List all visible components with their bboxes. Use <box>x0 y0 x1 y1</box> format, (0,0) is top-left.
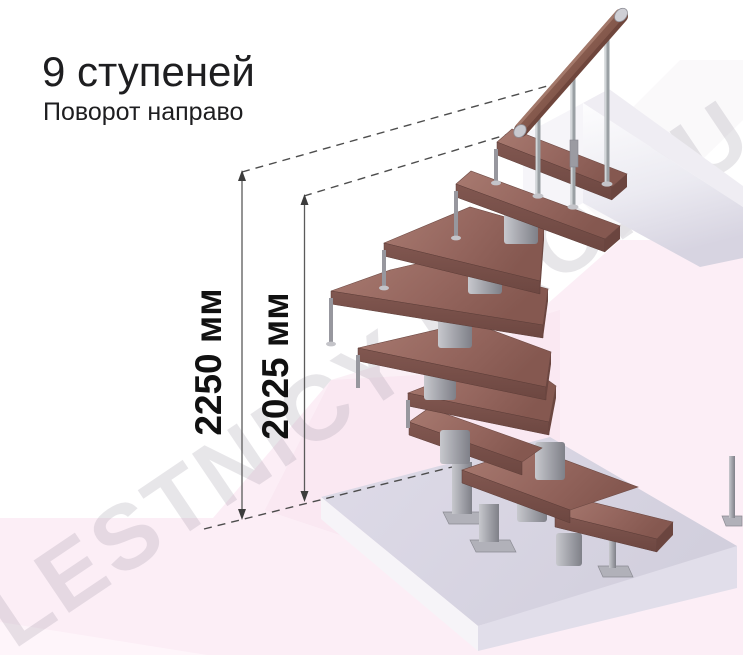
title-block: 9 ступеней Поворот направо <box>42 48 255 126</box>
page-subtitle: Поворот направо <box>43 98 243 126</box>
rod-foot <box>379 286 389 291</box>
support-post <box>479 504 499 542</box>
page-title: 9 ступеней <box>42 48 255 95</box>
baluster-foot <box>533 193 544 198</box>
staircase-diagram-page: LESTNICY-PRO.RU 2250 мм 2025 мм 9 ступ <box>0 0 743 655</box>
baluster-bracket <box>570 140 578 167</box>
rod-foot <box>451 236 461 241</box>
rod-foot <box>491 181 501 186</box>
support-post-thin <box>729 456 735 518</box>
staircase-diagram: LESTNICY-PRO.RU 2250 мм 2025 мм 9 ступ <box>0 0 743 655</box>
column-module <box>556 533 582 566</box>
dimension-2250-label: 2250 мм <box>188 288 229 435</box>
column-module <box>440 430 470 464</box>
dimension-2025-label: 2025 мм <box>255 292 296 439</box>
rod-foot <box>326 342 336 347</box>
baluster-foot <box>602 181 613 186</box>
baluster-foot <box>568 204 579 209</box>
